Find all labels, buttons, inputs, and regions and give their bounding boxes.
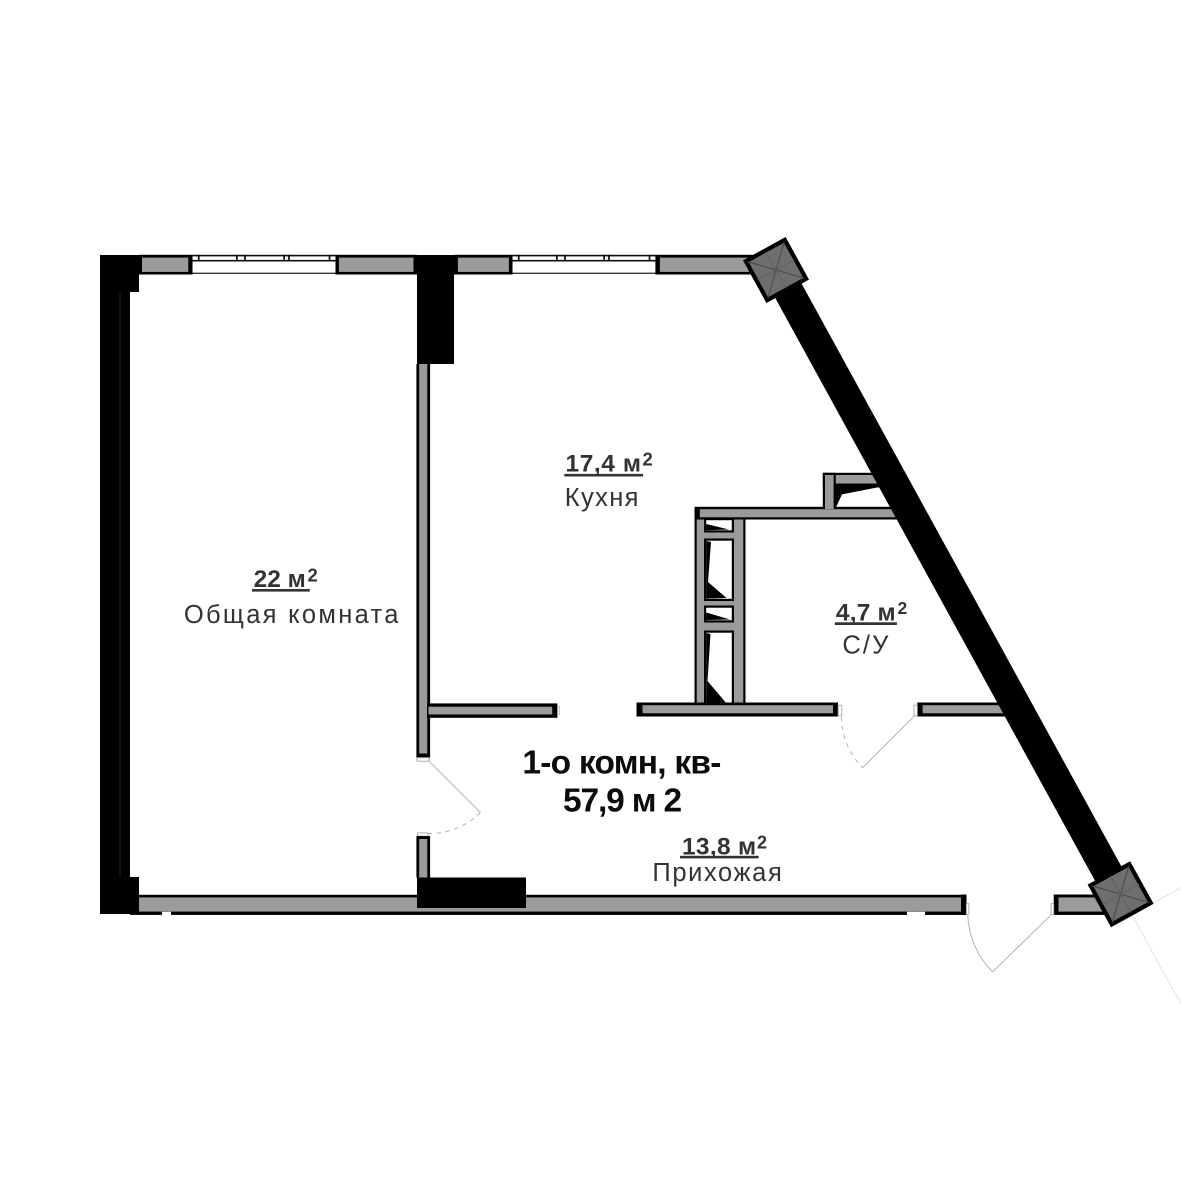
svg-text:2: 2 [757, 832, 767, 852]
svg-text:2: 2 [643, 449, 653, 470]
svg-text:1-о комн, кв-: 1-о комн, кв- [522, 745, 720, 782]
svg-text:Прихожая: Прихожая [652, 859, 783, 887]
svg-text:2: 2 [898, 598, 908, 618]
svg-text:17,4 м: 17,4 м [566, 450, 642, 477]
svg-text:57,9 м 2: 57,9 м 2 [563, 782, 682, 819]
svg-text:Общая комната: Общая комната [184, 601, 401, 629]
svg-text:С/У: С/У [842, 632, 890, 660]
svg-text:22 м: 22 м [254, 566, 306, 593]
svg-text:Кухня: Кухня [565, 484, 640, 512]
svg-text:2: 2 [308, 565, 318, 586]
